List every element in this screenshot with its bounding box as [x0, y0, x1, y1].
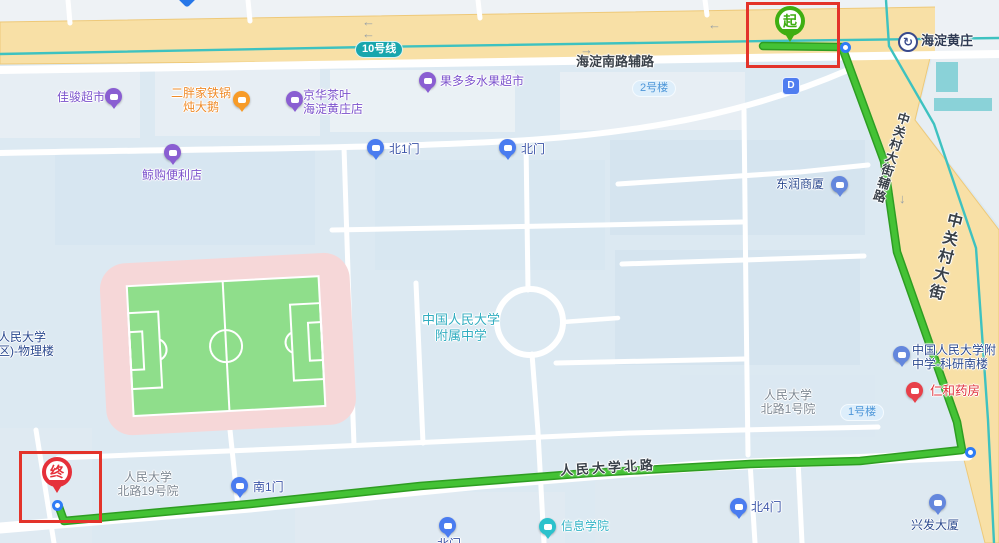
pharmacy-pin-icon[interactable]	[906, 382, 923, 399]
stadium	[99, 252, 358, 437]
supermarket-pin-icon[interactable]	[105, 88, 122, 105]
building-badge-1: 1号楼	[840, 404, 884, 421]
poi-label-wuli: 国人民大学 校区)-物理楼	[0, 330, 54, 358]
end-annotation-box	[19, 451, 102, 523]
gate-pin-icon[interactable]	[231, 477, 248, 494]
ne-teal-block-1	[936, 62, 958, 92]
restaurant-pin-icon[interactable]	[233, 91, 250, 108]
poi-label-gate-n1[interactable]: 北1门	[389, 142, 420, 156]
subway-station-icon[interactable]: ↻	[898, 32, 918, 52]
gate-pin-icon[interactable]	[499, 139, 516, 156]
poi-label-gate-s1[interactable]: 南1门	[253, 480, 284, 494]
poi-label-jinghua[interactable]: 京华茶叶 海淀黄庄店	[303, 88, 363, 116]
road-label-haidian-south-aux: 海淀南路辅路	[576, 55, 654, 69]
poi-label-guoduoduo[interactable]: 果多多水果超市	[440, 74, 524, 88]
poi-label-jinggou[interactable]: 鲸购便利店	[142, 168, 202, 182]
start-annotation-box	[746, 2, 840, 68]
poi-label-erpang[interactable]: 二胖家铁锅 炖大鹅	[168, 86, 234, 114]
fruitshop-pin-icon[interactable]	[419, 72, 436, 89]
teashop-pin-icon[interactable]	[286, 91, 303, 108]
area-label-yard1: 人民大学 北路1号院	[750, 388, 826, 416]
college-pin-icon[interactable]	[539, 518, 556, 535]
poi-label-gate-n[interactable]: 北门	[521, 142, 545, 156]
poi-label-keyan[interactable]: 中国人民大学附 中学-科研南楼	[912, 343, 996, 371]
convenience-pin-icon[interactable]	[164, 144, 181, 161]
route-waypoint-dot	[965, 447, 976, 458]
poi-label-jiajun[interactable]: 佳骏超市	[57, 90, 105, 104]
ne-corner-block	[935, 0, 999, 57]
road-arrow-left: ←	[708, 19, 721, 31]
road-arrow-left: ←	[362, 28, 375, 40]
subway-line10-badge[interactable]: 10号线	[355, 41, 403, 58]
gate-pin-icon[interactable]	[367, 139, 384, 156]
poi-label-renhe[interactable]: 仁和药房	[930, 384, 980, 398]
poi-label-xinxi[interactable]: 信息学院	[561, 519, 609, 533]
building-pin-icon[interactable]	[893, 346, 910, 363]
poi-label-gate-n4[interactable]: 北4门	[751, 500, 782, 514]
building-pin-icon[interactable]	[929, 494, 946, 511]
poi-label-dongrun[interactable]: 东润商厦	[776, 177, 824, 191]
map-canvas[interactable]: ← ← ← → ↓ 10号线 ↻ 海淀黄庄 D 海淀南路辅路 中关村大街辅路 中…	[0, 0, 999, 543]
route-waypoint-dot	[840, 42, 851, 53]
gate-pin-icon[interactable]	[439, 517, 456, 534]
gate-pin-icon[interactable]	[730, 498, 747, 515]
ne-teal-block-2	[934, 98, 992, 111]
subway-station-label[interactable]: 海淀黄庄	[921, 34, 973, 48]
poi-label-xingfa[interactable]: 兴发大厦	[911, 518, 959, 532]
building-pin-icon[interactable]	[831, 176, 848, 193]
area-label-yard19: 人民大学 北路19号院	[108, 470, 188, 498]
road-arrow-down: ↓	[899, 193, 906, 205]
building-badge-2: 2号楼	[632, 80, 676, 97]
area-label-fuzhong: 中国人民大学 附属中学	[401, 312, 521, 344]
poi-label-gate-bottom[interactable]: 北门	[437, 537, 461, 543]
subway-exit-d-badge[interactable]: D	[782, 77, 800, 95]
